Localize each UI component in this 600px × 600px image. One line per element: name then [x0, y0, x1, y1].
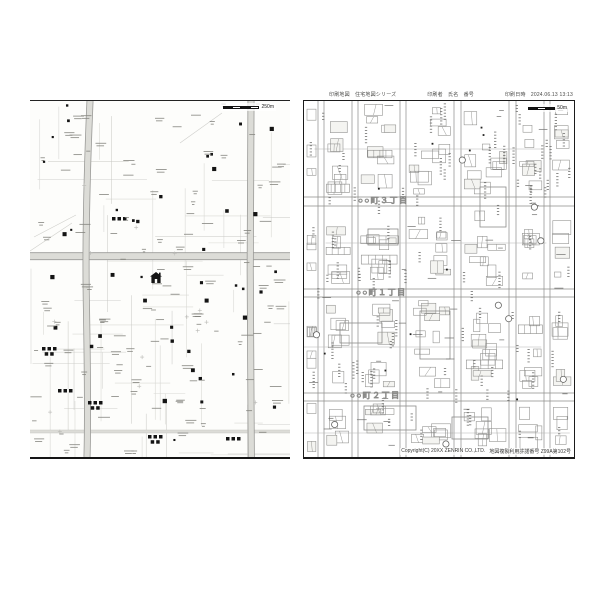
right-scale-label: 50m	[557, 105, 567, 111]
scale-segment	[537, 107, 546, 110]
scale-segment	[223, 106, 232, 109]
detail-map-panel: 50m ○○町３丁目 ○○町１丁目 ○○町２丁目 Copyright(C) 20…	[303, 100, 575, 459]
right-scale-bar: 50m	[526, 104, 569, 112]
print-datetime-label: 印刷日時 2024.06.13 13:13	[505, 91, 573, 98]
print-header: 印刷地図 住宅地図シリーズ 印刷者 氏名 番号 印刷日時 2024.06.13 …	[303, 90, 573, 99]
district-label: ○○町３丁目	[358, 195, 409, 206]
scale-segment	[232, 106, 241, 109]
scale-segment	[546, 107, 555, 110]
scale-segment	[250, 106, 259, 109]
left-scale-label: 250m	[261, 104, 274, 110]
map-copyright-footer: Copyright(C) 20XX ZENRIN CO.,LTD. 地図複製利用…	[400, 448, 572, 455]
scale-segment	[528, 107, 537, 110]
print-user-label: 印刷者 氏名 番号	[427, 91, 474, 98]
copyright-text: Copyright(C) 20XX ZENRIN CO.,LTD.	[401, 448, 485, 455]
license-text: 地図複製利用許諾番号 Z99A第102号	[489, 448, 571, 455]
district-label: ○○町１丁目	[356, 287, 407, 298]
detail-map-canvas	[304, 101, 574, 457]
left-scale-bar: 250m	[221, 103, 276, 111]
wide-area-map-panel: 250m	[30, 100, 290, 459]
house-current-location-icon	[150, 272, 162, 283]
print-map-label: 印刷地図 住宅地図シリーズ	[329, 91, 396, 98]
district-label: ○○町２丁目	[350, 390, 401, 401]
scale-segment	[241, 106, 250, 109]
